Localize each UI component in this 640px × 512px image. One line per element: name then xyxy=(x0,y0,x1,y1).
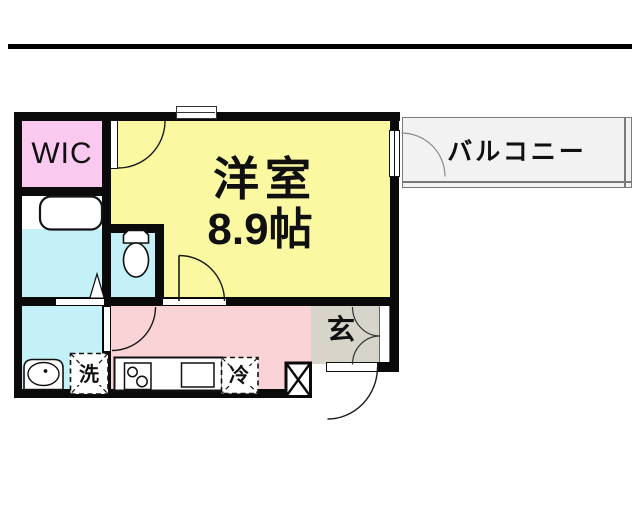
balcony-inner-line-horizontal xyxy=(403,181,631,183)
western-room-size: 8.9帖 xyxy=(150,208,370,252)
washer-label: 洗 xyxy=(77,365,101,385)
toilet-floor xyxy=(109,231,156,299)
top-wall-window xyxy=(176,106,217,119)
entrance-door-arc xyxy=(328,367,378,419)
top-wall-window-sash-line xyxy=(177,112,215,114)
shoe-cabinet xyxy=(379,305,390,364)
entrance-label: 玄 xyxy=(311,316,371,344)
wic-door-leaf xyxy=(110,120,118,169)
balcony-label: バルコニー xyxy=(402,140,632,165)
bathroom-floor xyxy=(22,229,103,299)
washroom-kitchen-doorway xyxy=(103,307,111,351)
wic-label: WIC xyxy=(18,139,106,169)
balcony-window xyxy=(389,130,400,177)
wall-entrance-post xyxy=(378,362,390,372)
room-kitchen-doorway xyxy=(163,298,226,306)
kitchen-floor xyxy=(106,304,312,391)
western-room-label: 洋室 xyxy=(160,156,370,202)
wall-bottom xyxy=(14,389,286,398)
balcony-window-sash-line xyxy=(394,131,395,176)
top-divider-line xyxy=(8,44,632,49)
bath-washroom-opening xyxy=(56,298,104,306)
refrigerator-label: 冷 xyxy=(227,366,251,386)
entrance-door-leaf xyxy=(326,362,378,372)
wall-wic-bottom xyxy=(14,187,111,196)
floor-plan-canvas: WIC 洋室 8.9帖 バルコニー 玄 洗 冷 xyxy=(0,0,640,512)
